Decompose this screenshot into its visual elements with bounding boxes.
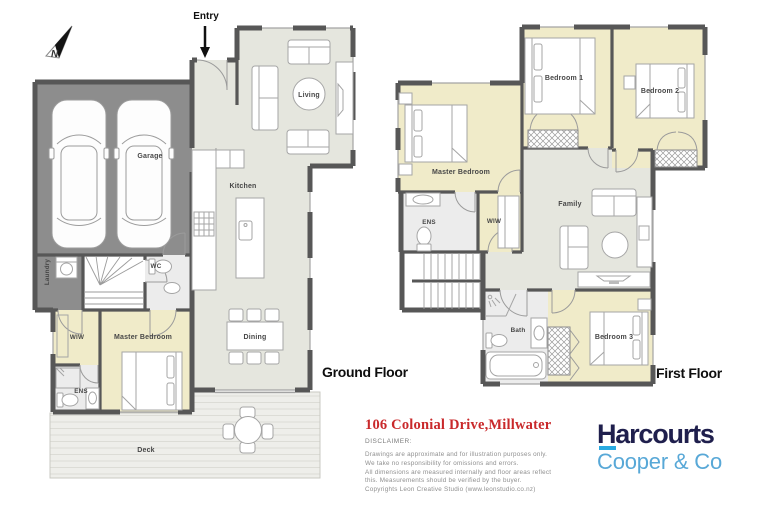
ground-floor-plan: Garage Living Kitchen Dining WC Laundry … [35,28,409,478]
entry-arrowhead-icon [200,47,210,58]
gf-wiw-label: WIW [70,334,84,341]
gf-master-bed [122,352,182,410]
gf-dining-label: Dining [244,334,267,341]
gf-garage-label: Garage [137,153,162,160]
gf-deck-label: Deck [137,447,155,454]
ff-wiw-closet [498,196,519,248]
disclaimer-line: Copyrights Leon Creative Studio (www.leo… [365,486,551,493]
gf-ens-label: ENS [74,388,88,395]
gf-laundry-washer [56,257,77,278]
gf-laundry-label: Laundry [44,259,51,286]
ff-hall-floor [483,252,522,290]
ff-bedroom1-label: Bedroom 1 [545,75,583,82]
brand-logo-subname: Cooper & Co [597,449,722,475]
ground-floor-title: Ground Floor [322,364,409,380]
entry-label: Entry [193,11,219,22]
ff-master-label: Master Bedroom [432,169,490,176]
first-floor-plan: Master Bedroom Bedroom 1 Bedroom 2 Famil… [398,27,723,384]
floorplan-page: N Entry [0,0,768,512]
north-arrow-icon: N [46,26,72,60]
gf-living-label: Living [298,92,320,99]
disclaimer-line: All dimensions are measured internally a… [365,469,551,476]
north-label: N [51,49,59,60]
ff-bedroom3-label: Bedroom 3 [595,334,633,341]
first-floor-title: First Floor [656,365,723,381]
ff-bedroom2-label: Bedroom 2 [641,88,679,95]
property-address: 106 Colonial Drive,Millwater [365,417,551,434]
disclaimer-line: this. Measurements should be verified by… [365,477,551,484]
gf-kitchen-label: Kitchen [229,183,256,190]
entry-marker: Entry [193,11,219,58]
gf-stairs-floor [83,255,145,310]
gf-master-label: Master Bedroom [114,334,172,341]
gf-wc-label: WC [151,263,162,270]
disclaimer-line: Drawings are approximate and for illustr… [365,451,551,458]
disclaimer-text: Drawings are approximate and for illustr… [365,451,551,495]
disclaimer-title: DISCLAIMER: [365,438,412,445]
ff-bath-label: Bath [511,327,526,334]
ff-ens-label: ENS [422,219,436,226]
ff-family-label: Family [558,201,581,208]
disclaimer-line: We take no responsibility for omissions … [365,460,551,467]
ff-wiw-label: WIW [487,218,501,225]
